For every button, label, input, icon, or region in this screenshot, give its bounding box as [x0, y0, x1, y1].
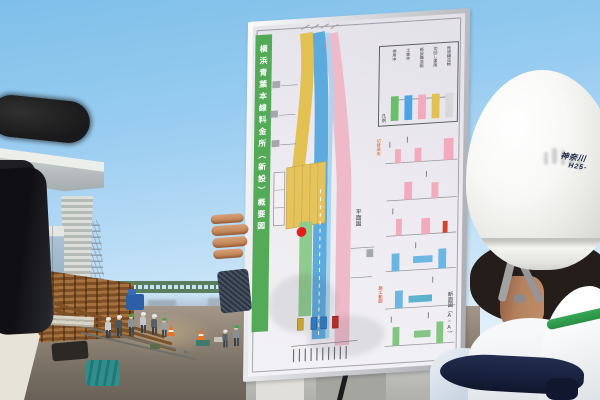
holding-hand [210, 213, 251, 262]
worker-figure [222, 330, 229, 348]
worker-figure [139, 312, 147, 333]
annotation-red: 施工範囲 [378, 286, 383, 304]
site-debris [196, 340, 210, 346]
legend-box: 凡例 供用中 工事中 新設構造物 切回し運用 既設 [378, 41, 459, 127]
worker-figure [160, 318, 167, 337]
helmet-strap-yoke [514, 294, 525, 303]
helmet-brim [466, 238, 600, 270]
section-view-label: 断面図（A−A） [445, 291, 453, 336]
worker-figure [115, 315, 123, 336]
shoulder-strap-end [546, 378, 578, 400]
helmet-text: 神奈川 H25- [559, 150, 589, 172]
site-debris [176, 348, 184, 352]
legend-item: 切回し運用 [430, 46, 442, 118]
legend-swatch-blue [404, 95, 412, 120]
site-debris [150, 344, 160, 349]
legend-title: 凡例 [381, 113, 387, 122]
legend-swatch-green [390, 96, 398, 121]
legend-swatch-gray [445, 93, 453, 118]
holder-sleeve [217, 268, 252, 313]
annotation-orange: 切替運用 [377, 138, 382, 156]
worker-figure [104, 317, 112, 338]
teal-tarp [86, 360, 120, 386]
video-camera-body [0, 166, 54, 335]
legend-item: 新設構造物 [416, 47, 428, 119]
plan-view-label: 平面図 [353, 208, 362, 226]
site-poster-frame: 横浜青葉本線料金所（新設）概要図 [243, 8, 470, 382]
site-poster: 横浜青葉本線料金所（新設）概要図 [248, 13, 465, 377]
worker-figure [150, 314, 158, 335]
site-equipment-dark [51, 340, 88, 361]
legend-swatch-yellow [431, 93, 439, 118]
legend-swatch-pink [417, 94, 425, 119]
legend-item: 既設構造物 [443, 45, 455, 117]
worker-figure [127, 314, 135, 335]
blue-machine [126, 294, 144, 310]
legend-item: 供用中 [389, 49, 401, 121]
legend-item: 工事中 [402, 48, 414, 120]
photo-scene: 横浜青葉本線料金所（新設）概要図 [0, 0, 600, 400]
worker-figure [232, 325, 240, 346]
